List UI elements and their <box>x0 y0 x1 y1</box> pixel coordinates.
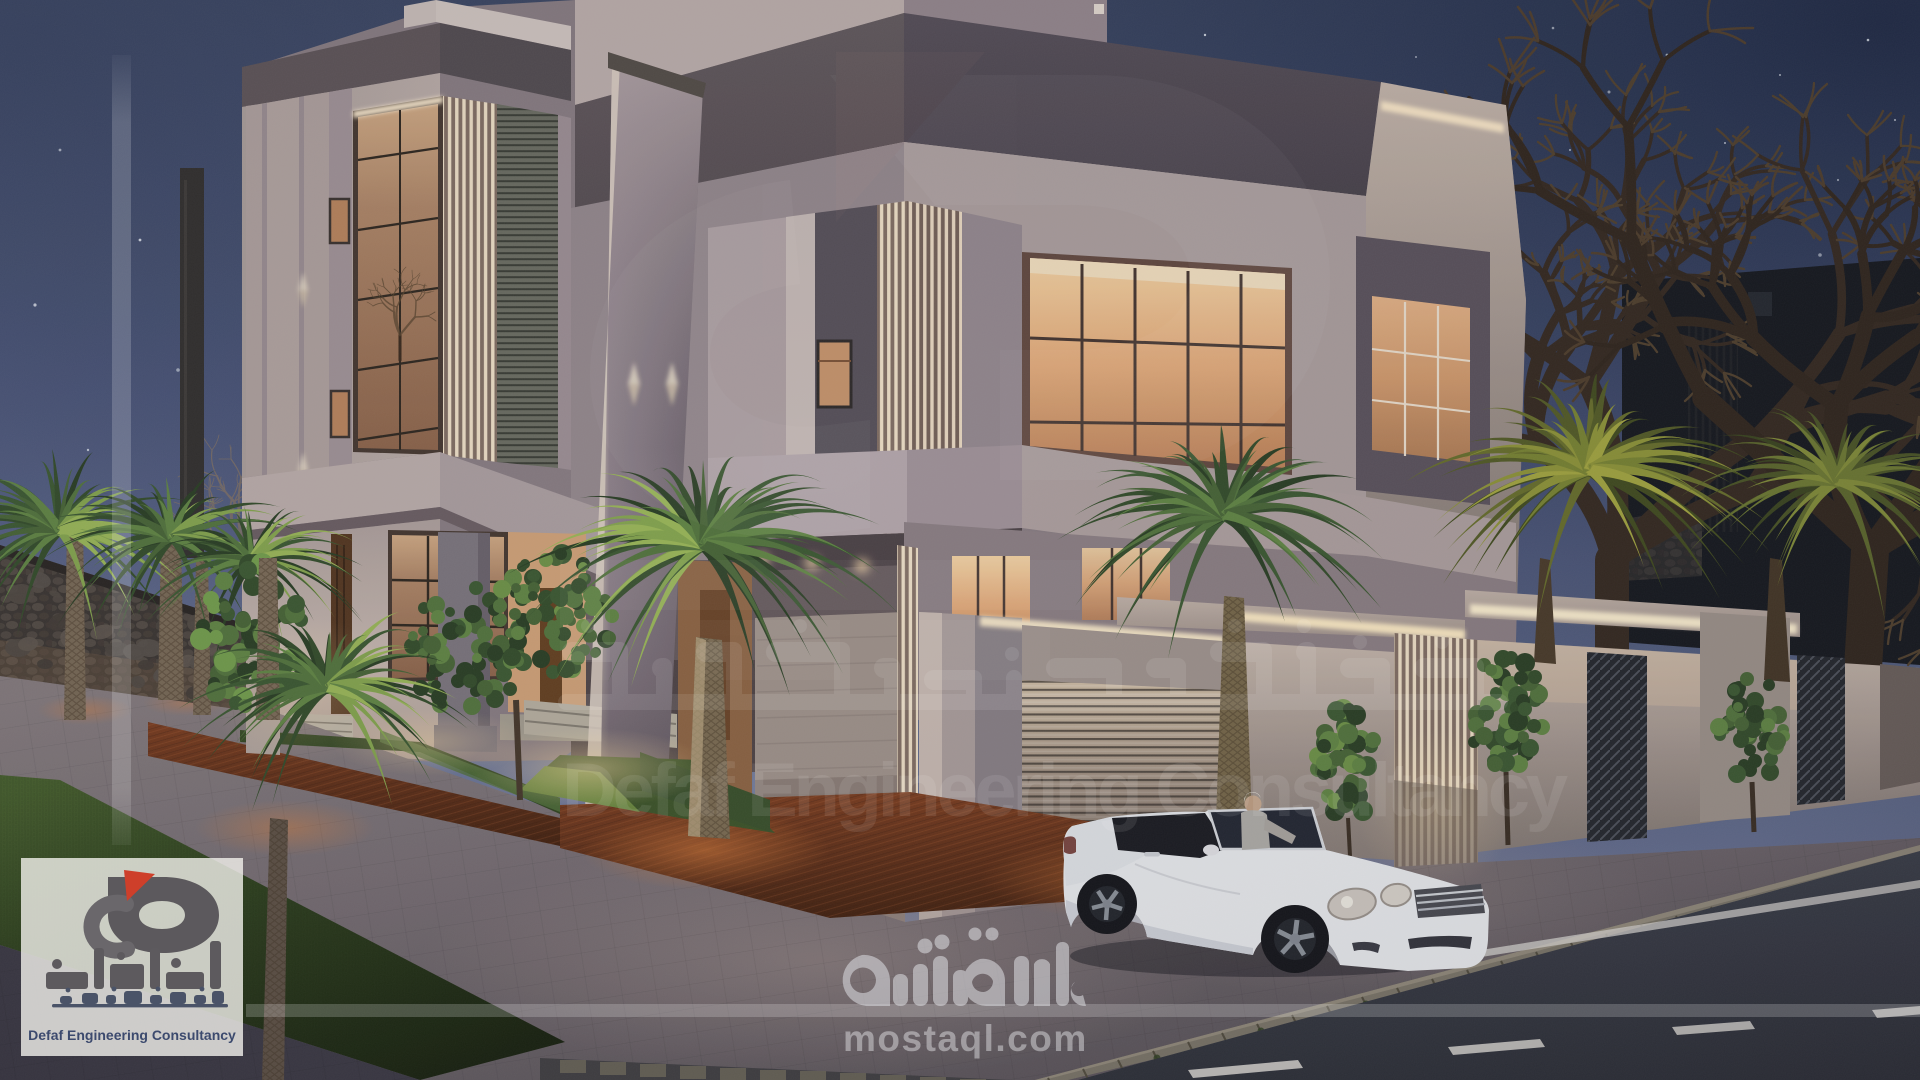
svg-text:Defaf Engineering Consultancy: Defaf Engineering Consultancy <box>562 748 1570 833</box>
svg-text:Defaf Engineering Consultanc: Defaf Engineering Consultancy <box>28 1027 236 1043</box>
svg-text:mostaql.com: mostaql.com <box>843 1018 1088 1059</box>
